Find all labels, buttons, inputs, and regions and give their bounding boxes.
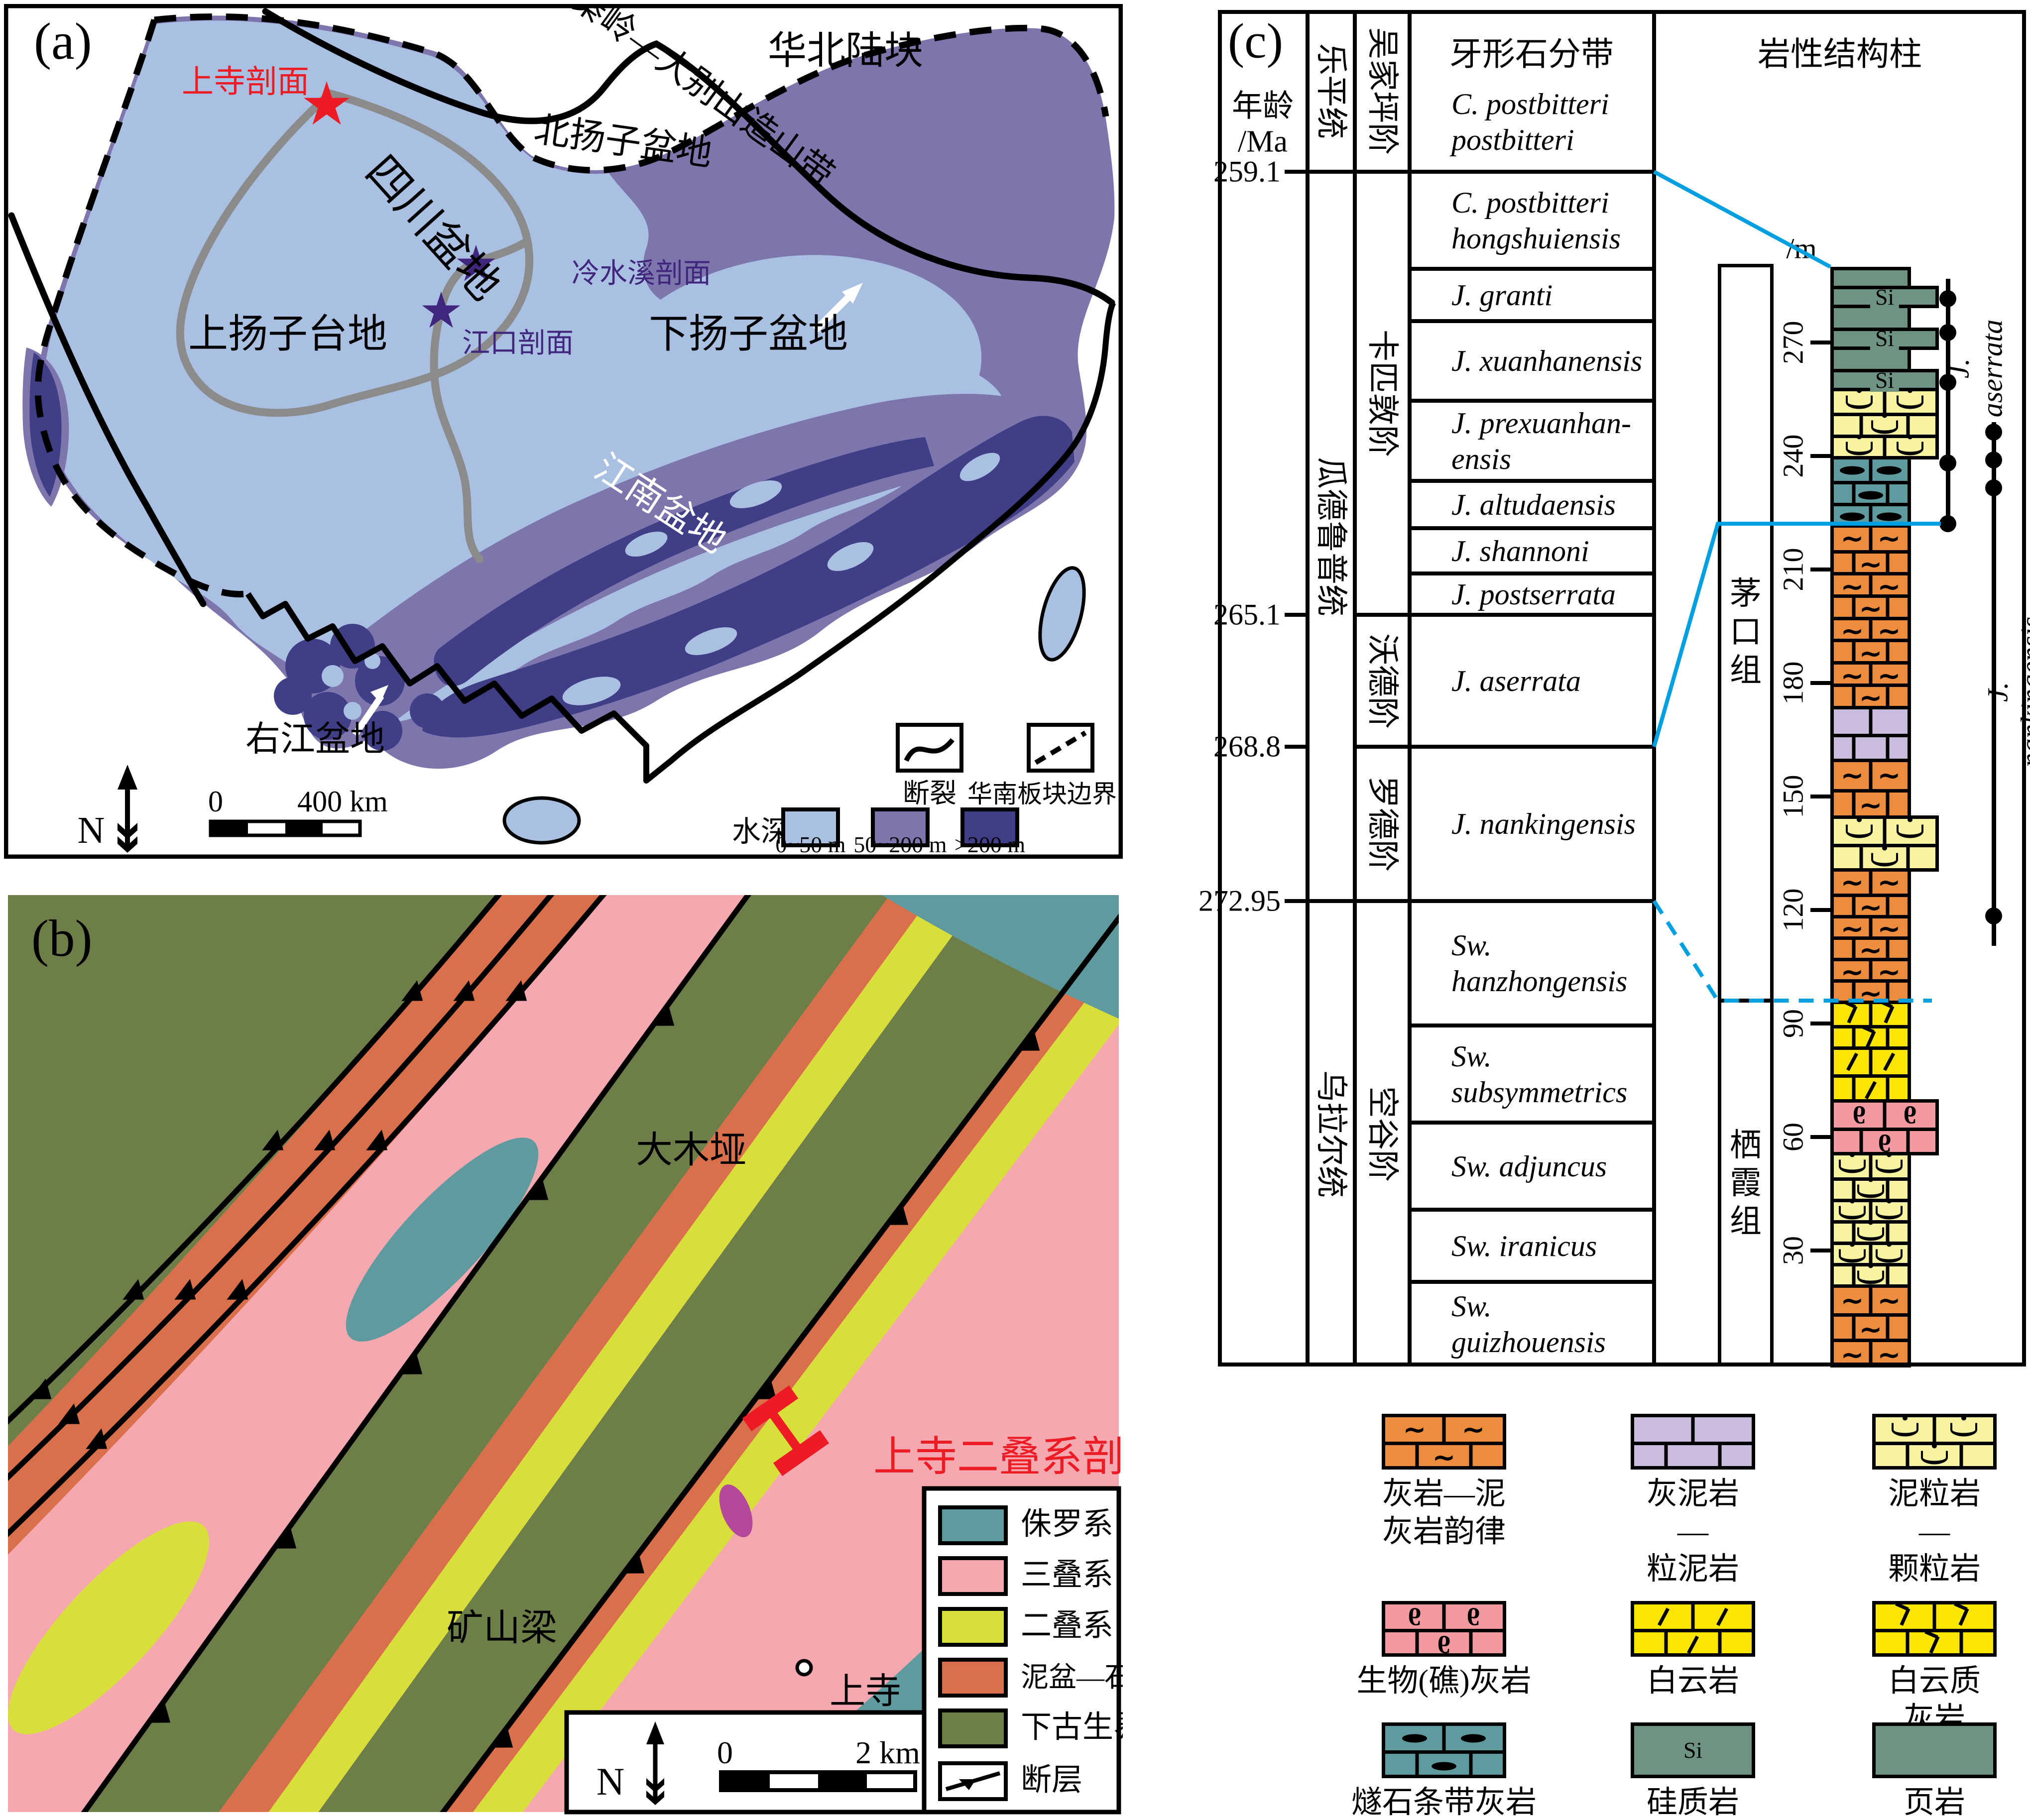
lith-symbol-dolomite xyxy=(1662,1607,1666,1626)
brick-row: ~~ xyxy=(1385,1417,1503,1442)
brick-joint xyxy=(1442,1417,1446,1442)
kuangshanliang-label: 矿山梁 xyxy=(447,1608,557,1649)
brick-joint xyxy=(1933,1604,1936,1629)
legend-label-dolomite: 白云岩 xyxy=(1647,1663,1739,1701)
geological-figure: ★ ★ ★ (a) 上寺剖面 冷水溪剖面 江口剖面 华北陆块 秦岭—大别山造山带… xyxy=(0,0,2030,1820)
legend-swatch-mudstone xyxy=(1631,1414,1755,1470)
si-label: Si xyxy=(1678,1739,1707,1762)
brick-joint xyxy=(1469,1632,1473,1657)
lith-symbol-dolomite xyxy=(1691,1635,1695,1654)
lith-symbol-bio: 9 xyxy=(1467,1604,1480,1629)
legend-label-fault: 断层 xyxy=(1021,1763,1082,1797)
brick-joint xyxy=(1469,1754,1473,1778)
svg-text:2 km: 2 km xyxy=(855,1735,920,1770)
brick-row xyxy=(1634,1442,1752,1470)
lower-yangtze-label: 下扬子盆地 xyxy=(649,313,848,356)
legend-swatch-jurassic xyxy=(940,1507,1006,1543)
lengshuixi-section-label: 冷水溪剖面 xyxy=(572,258,711,289)
depth-label-2: >200 m xyxy=(955,832,1025,857)
north-scale-box-b: N 0 2 km xyxy=(567,1712,924,1812)
lith-symbol-chert xyxy=(1402,1734,1427,1742)
brick-joint xyxy=(1415,1754,1419,1778)
depth-label-1: 50~200 m xyxy=(853,832,947,857)
brick-joint xyxy=(1906,1445,1909,1470)
youjiang-label: 右江盆地 xyxy=(245,720,385,759)
brick-joint xyxy=(1442,1604,1446,1629)
brick-joint xyxy=(1691,1417,1695,1442)
legend-label-triassic: 三叠系 xyxy=(1021,1558,1113,1592)
legend-label-bio: 生物(礁)灰岩 xyxy=(1356,1663,1531,1701)
plate-boundary-legend-label: 华南板块边界 xyxy=(967,780,1117,808)
shangsi-village-label: 上寺 xyxy=(830,1672,901,1711)
panel-b-map: (b) 大木垭 上寺二叠系剖面 矿山梁 上寺 N 0 2 km 侏罗系 三叠系 xyxy=(4,891,1123,1816)
brick-row xyxy=(1634,1629,1752,1657)
brick-row: ~ xyxy=(1385,1442,1503,1470)
shangsi-village-marker xyxy=(797,1661,811,1675)
brick-joint xyxy=(1415,1445,1419,1470)
legend-label-wacke: 泥粒岩 — 颗粒岩 xyxy=(1888,1476,1981,1589)
brick-row xyxy=(1876,1442,1993,1470)
legend-swatch-wacke xyxy=(1872,1414,1997,1470)
jiangkou-star: ★ xyxy=(419,283,464,339)
lith-symbol-dololst xyxy=(1962,1608,1966,1626)
legend-swatch-chert xyxy=(1382,1722,1506,1778)
brick-row xyxy=(1385,1726,1503,1750)
island xyxy=(322,665,344,687)
depth-label-0: 0~50 m xyxy=(775,832,845,857)
legend-label-shale: 页岩 xyxy=(1904,1784,1965,1820)
lith-symbol-marl: ~ xyxy=(1403,1417,1427,1442)
island xyxy=(344,702,361,720)
legend-swatch-dololst xyxy=(1872,1601,1997,1657)
shangsi-permian-section-label: 上寺二叠系剖面 xyxy=(873,1434,1123,1480)
lith-symbol-dolomite xyxy=(1721,1607,1724,1626)
brick-joint xyxy=(1718,1445,1722,1470)
legend-label-lower-paleozoic: 下古生界 xyxy=(1021,1710,1123,1744)
svg-text:N: N xyxy=(78,809,105,851)
legend-label-chert: 燧石条带灰岩 xyxy=(1351,1784,1537,1820)
svg-text:0: 0 xyxy=(208,785,223,818)
lith-symbol-chert xyxy=(1432,1762,1456,1770)
brick-joint xyxy=(1906,1632,1909,1657)
hainan-island xyxy=(504,798,579,843)
lith-symbol-dololst xyxy=(1904,1608,1907,1626)
brick-joint xyxy=(1718,1632,1722,1657)
lith-symbol-dololst xyxy=(1933,1636,1936,1654)
legend-swatch-dolomite xyxy=(1631,1601,1755,1657)
lith-symbol-wacke xyxy=(1892,1423,1918,1436)
legend-swatch-triassic xyxy=(940,1558,1006,1594)
legend-swatch-shale xyxy=(1872,1722,1997,1778)
legend-swatch-bio: 999 xyxy=(1382,1601,1506,1657)
legend-label-marl: 灰岩—泥 灰岩韵律 xyxy=(1382,1476,1506,1551)
brick-joint xyxy=(1442,1726,1446,1750)
lith-symbol-marl: ~ xyxy=(1462,1417,1485,1442)
brick-joint xyxy=(1664,1445,1668,1470)
panel-c-border xyxy=(1218,10,2026,1366)
legend-swatch-dev-carb xyxy=(940,1660,1006,1696)
lith-symbol-wacke xyxy=(1921,1451,1948,1464)
brick-joint xyxy=(1960,1445,1963,1470)
lith-symbol-wacke xyxy=(1950,1423,1977,1436)
legend-swatch-permian xyxy=(940,1609,1006,1645)
brick-row xyxy=(1876,1629,1993,1657)
north-china-label: 华北陆块 xyxy=(768,29,923,72)
brick-joint xyxy=(1691,1604,1695,1629)
legend-label-si: 硅质岩 xyxy=(1647,1784,1739,1820)
brick-row: 99 xyxy=(1385,1604,1503,1629)
legend-swatch-marl: ~~~ xyxy=(1382,1414,1506,1470)
jiangkou-section-label: 江口剖面 xyxy=(462,328,574,359)
svg-text:0: 0 xyxy=(717,1735,733,1770)
brick-joint xyxy=(1415,1632,1419,1657)
lith-symbol-bio: 9 xyxy=(1437,1630,1450,1657)
panel-a-map: ★ ★ ★ (a) 上寺剖面 冷水溪剖面 江口剖面 华北陆块 秦岭—大别山造山带… xyxy=(4,4,1123,859)
brick-row xyxy=(1634,1604,1752,1629)
upper-yangtze-label: 上扬子台地 xyxy=(188,313,387,356)
legend-label-permian: 二叠系 xyxy=(1021,1609,1113,1643)
legend-swatch-lower-paleozoic xyxy=(940,1710,1006,1746)
lith-symbol-marl: ~ xyxy=(1433,1442,1456,1470)
brick-joint xyxy=(1960,1632,1963,1657)
svg-text:N: N xyxy=(597,1760,624,1803)
panel-a-tag: (a) xyxy=(34,12,92,70)
brick-row xyxy=(1634,1417,1752,1442)
brick-row xyxy=(1385,1750,1503,1778)
lith-symbol-bio: 9 xyxy=(1408,1604,1421,1629)
legend-label-jurassic: 侏罗系 xyxy=(1021,1507,1113,1541)
brick-joint xyxy=(1933,1417,1936,1442)
legend-label-mudstone: 灰泥岩 — 粒泥岩 xyxy=(1647,1476,1739,1589)
damuya-label: 大木垭 xyxy=(636,1130,746,1171)
shangsi-section-label: 上寺剖面 xyxy=(182,64,309,100)
brick-row: 9 xyxy=(1385,1629,1503,1657)
brick-joint xyxy=(1664,1632,1668,1657)
lith-symbol-chert xyxy=(1461,1734,1486,1742)
fault-legend-label: 断裂 xyxy=(903,779,956,808)
panel-b-legend: 侏罗系 三叠系 二叠系 泥盆—石炭系 下古生界 断层 xyxy=(924,1488,1123,1812)
legend-swatch-si: Si xyxy=(1631,1722,1755,1778)
brick-row xyxy=(1876,1417,1993,1442)
panel-b-tag: (b) xyxy=(31,909,92,967)
brick-joint xyxy=(1469,1445,1473,1470)
svg-text:400 km: 400 km xyxy=(297,785,388,818)
brick-row xyxy=(1876,1604,1993,1629)
legend-label-dev-carb: 泥盆—石炭系 xyxy=(1021,1662,1123,1693)
